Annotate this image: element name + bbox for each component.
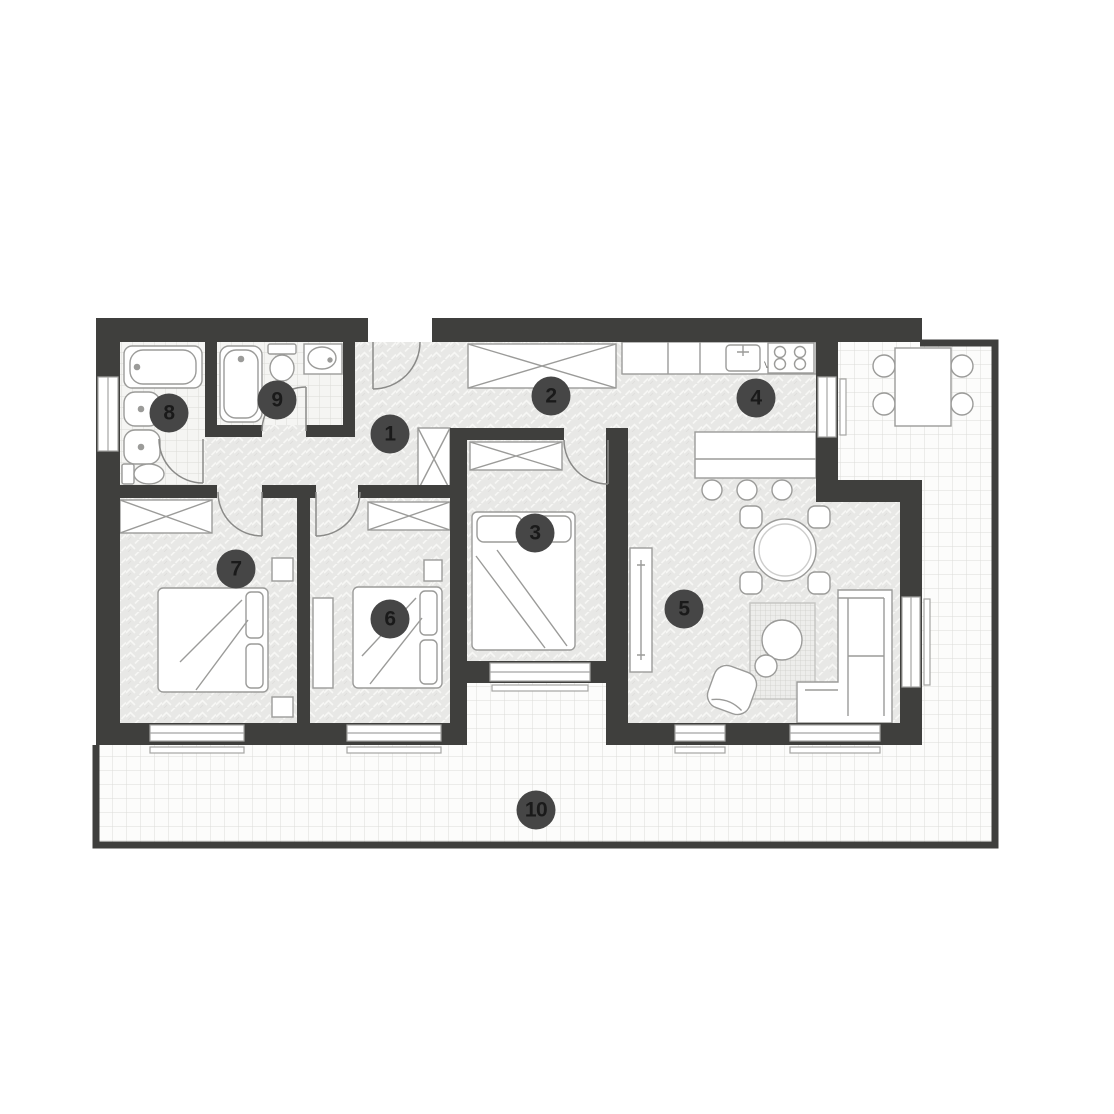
bathtub-icon	[220, 346, 262, 422]
wardrobe-icon	[120, 500, 212, 533]
wall	[343, 342, 355, 437]
room-marker-1[interactable]: 1	[371, 415, 410, 454]
room-marker-2[interactable]: 2	[532, 377, 571, 416]
wall	[96, 318, 368, 342]
kitchen-sink-icon	[726, 345, 760, 371]
door-leaf	[630, 548, 652, 672]
room-marker-7-number: 7	[230, 557, 241, 581]
room-marker-5[interactable]: 5	[665, 590, 704, 629]
wardrobe-icon	[368, 502, 450, 530]
window	[902, 597, 920, 687]
round-dining-table-icon	[754, 519, 816, 581]
wall	[96, 485, 217, 498]
wall	[467, 428, 564, 440]
wall	[205, 425, 262, 437]
room-marker-8-number: 8	[163, 401, 174, 425]
room-marker-6[interactable]: 6	[371, 600, 410, 639]
dining-chair-icon	[740, 572, 762, 594]
room-marker-1-number: 1	[384, 422, 395, 446]
room-marker-8[interactable]: 8	[150, 394, 189, 433]
bar-stool-icon	[702, 480, 722, 500]
room-marker-9-number: 9	[271, 388, 282, 412]
room-marker-10[interactable]: 10	[517, 791, 556, 830]
nightstand-icon	[424, 560, 442, 581]
room-marker-4-number: 4	[750, 386, 761, 410]
window-sill	[150, 747, 244, 753]
bar-stool-icon	[772, 480, 792, 500]
sink-icon	[124, 430, 160, 464]
window	[818, 377, 836, 437]
window	[675, 725, 725, 741]
room-marker-5-number: 5	[678, 597, 689, 621]
toilet-icon	[268, 344, 296, 381]
window-sill	[347, 747, 441, 753]
wall	[297, 498, 310, 723]
window-sill	[492, 685, 588, 691]
wall	[262, 485, 316, 498]
nightstand-icon	[272, 558, 293, 581]
window	[98, 377, 118, 451]
floor-plan-drawing: VM	[0, 0, 1114, 1114]
wall	[838, 480, 922, 502]
window	[347, 725, 441, 741]
room-marker-2-number: 2	[545, 384, 556, 408]
window-sill	[924, 599, 930, 685]
room-marker-3[interactable]: 3	[516, 514, 555, 553]
window-sill	[790, 747, 880, 753]
dining-chair-icon	[808, 506, 830, 528]
wall	[205, 342, 217, 425]
window	[150, 725, 244, 741]
room-marker-4[interactable]: 4	[737, 379, 776, 418]
bar-stool-icon	[737, 480, 757, 500]
wall	[358, 485, 455, 498]
window-sill	[675, 747, 725, 753]
room-marker-6-number: 6	[384, 607, 395, 631]
kitchen-island	[695, 432, 816, 478]
room-marker-9[interactable]: 9	[258, 381, 297, 420]
bed-icon	[158, 588, 268, 692]
dining-chair-icon	[740, 506, 762, 528]
sink-icon	[304, 344, 342, 374]
stove-icon	[768, 343, 814, 373]
toilet-icon	[122, 464, 164, 484]
wall	[306, 425, 355, 437]
wall	[432, 318, 922, 342]
room-marker-3-number: 3	[529, 521, 540, 545]
bathtub-icon	[124, 346, 202, 388]
terrace-table-icon	[895, 348, 951, 426]
window	[790, 725, 880, 741]
room-marker-7[interactable]: 7	[217, 550, 256, 589]
window	[490, 663, 590, 681]
wardrobe-icon	[418, 428, 450, 490]
room-marker-10-number: 10	[525, 798, 547, 822]
dresser-icon	[313, 598, 333, 688]
wardrobe-icon	[470, 442, 562, 470]
nightstand-icon	[272, 697, 293, 717]
floor-plan-page: VM	[0, 0, 1114, 1114]
dining-chair-icon	[808, 572, 830, 594]
window-sill	[840, 379, 846, 435]
